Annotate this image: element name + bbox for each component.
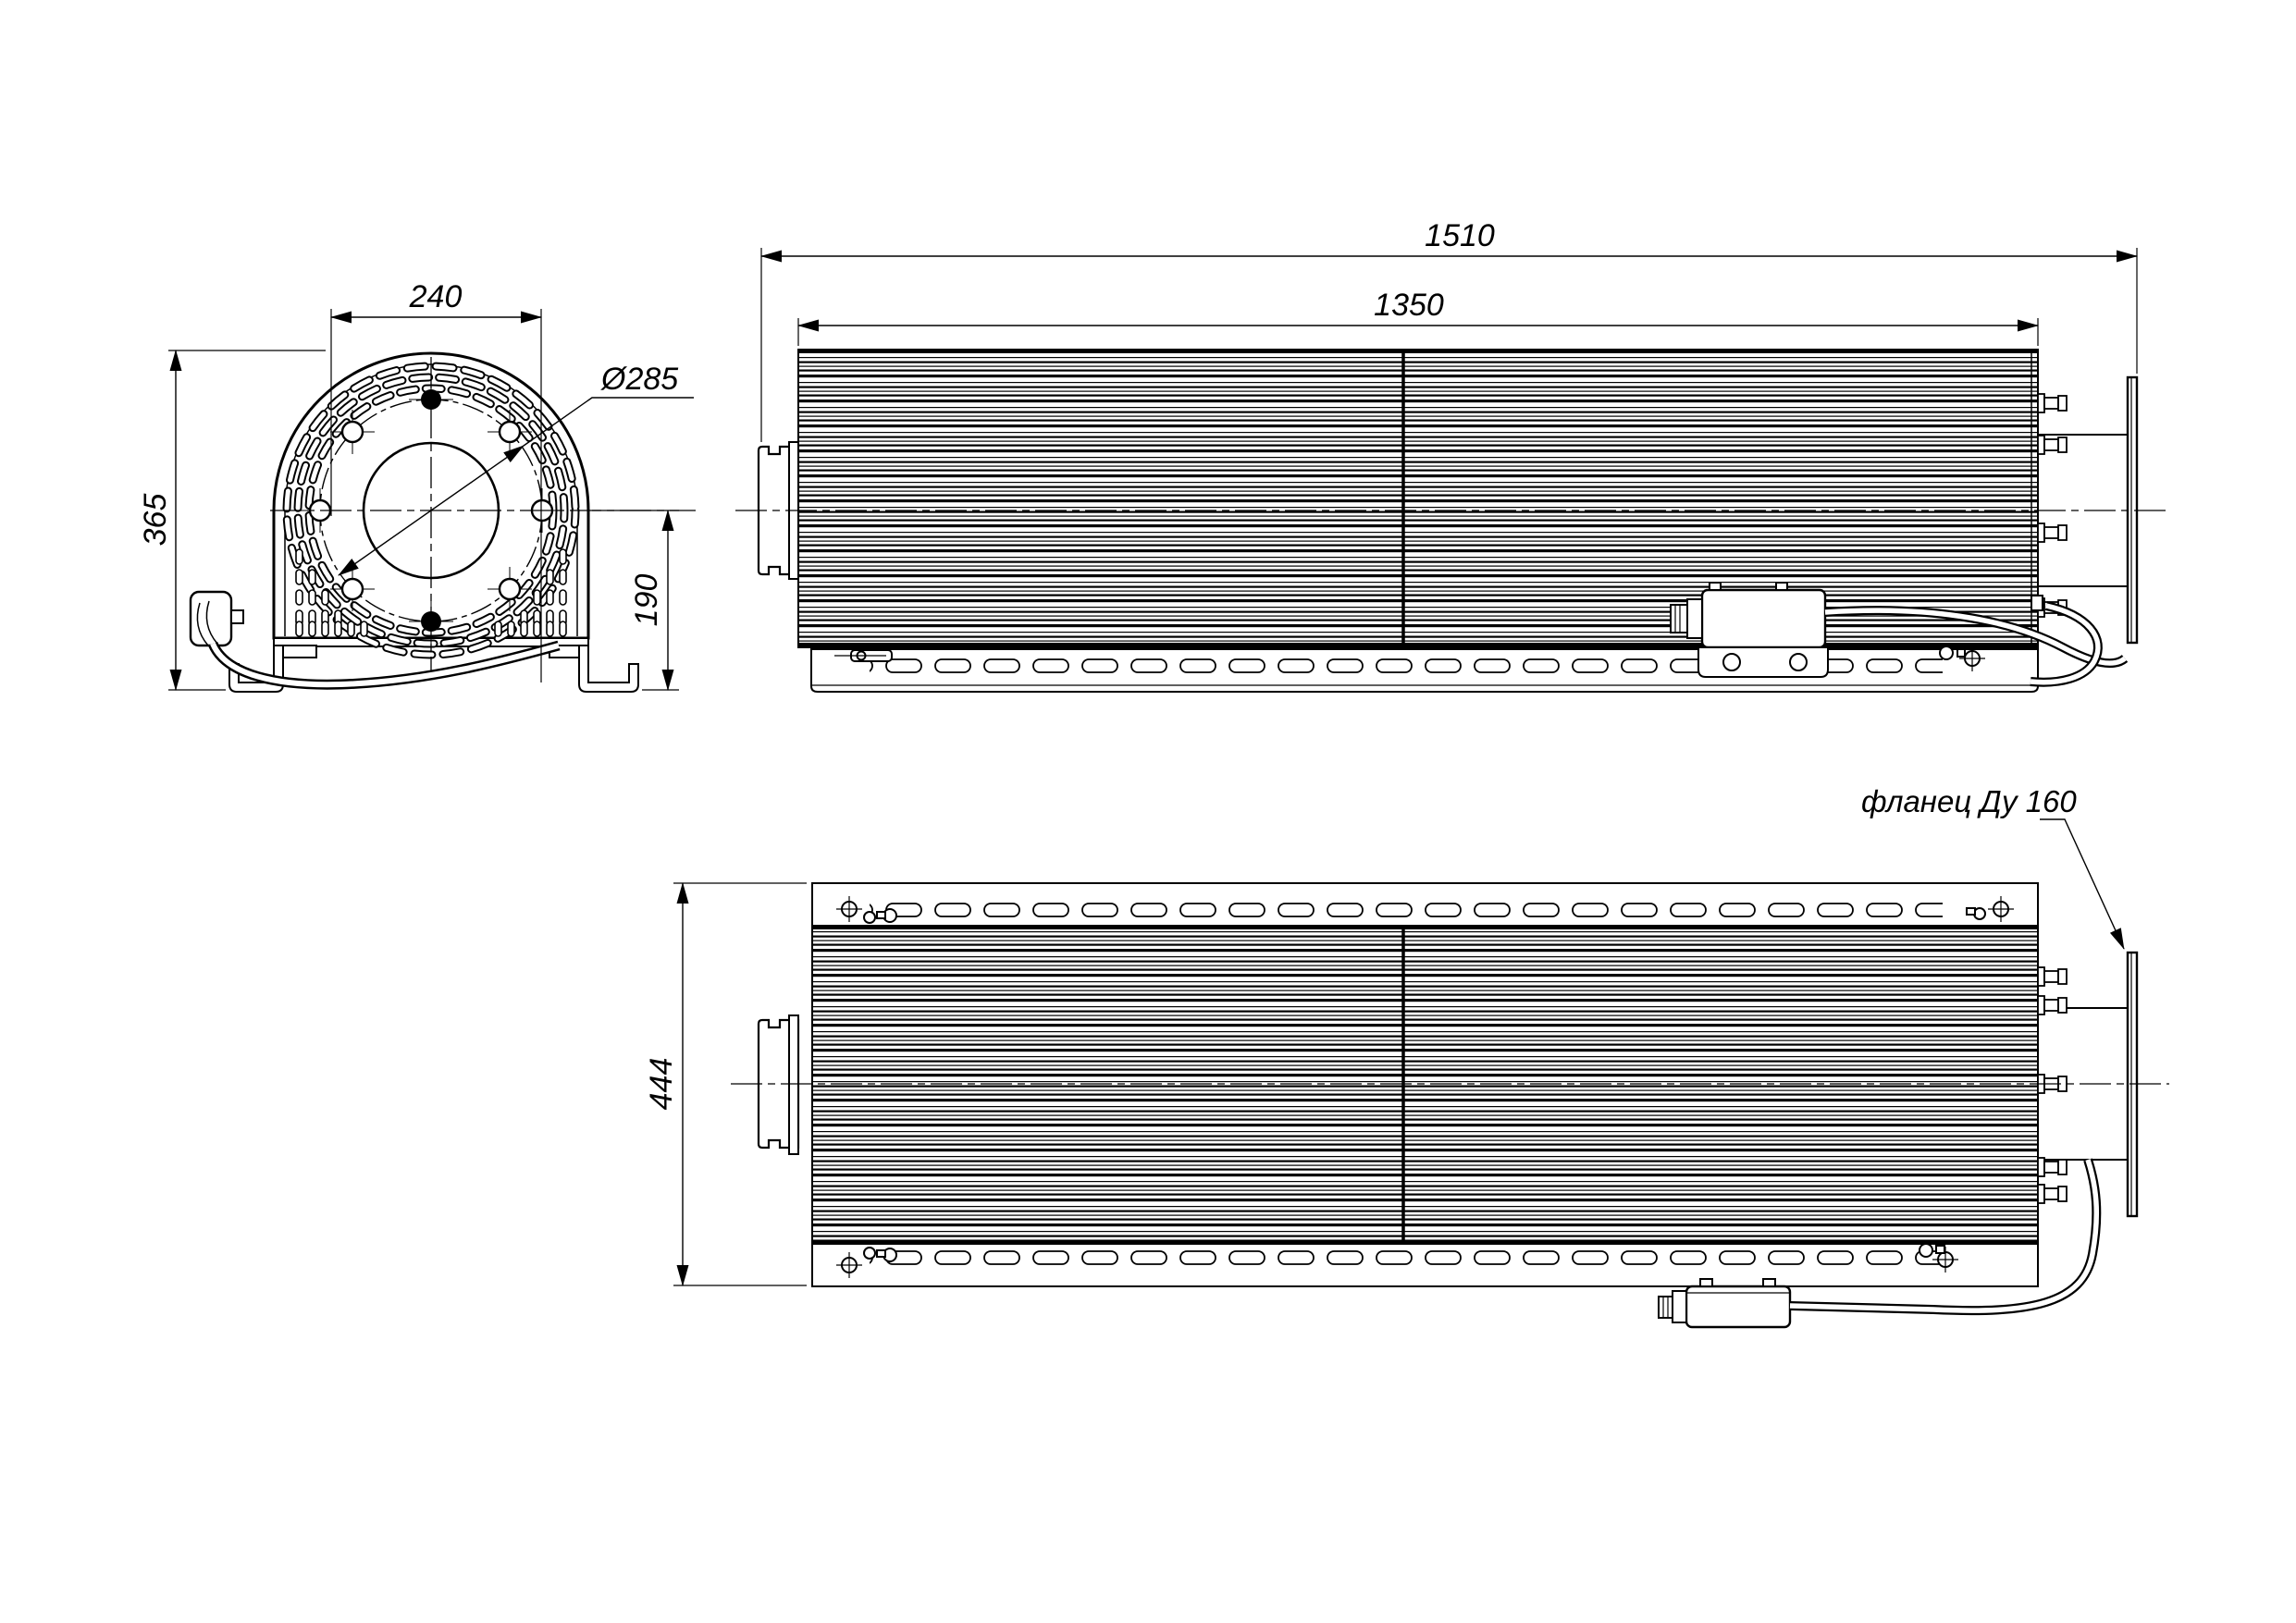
front-width-label: 240 [409,279,463,314]
dimension-axis-height: 190 [592,510,679,690]
mounting-rail-side [811,646,2038,692]
plan-view [731,883,2169,1327]
axis-height-label: 190 [629,574,664,627]
dimension-finned-length: 1350 [798,288,2038,346]
overall-length-label: 1510 [1425,218,1495,253]
drawing-sheet: 240 365 Ø285 190 1510 [0,0,2296,1623]
bolt-circle-label: Ø285 [600,362,678,397]
studs-plan [2038,967,2067,1203]
finned-length-label: 1350 [1374,288,1444,323]
technical-drawing: 240 365 Ø285 190 1510 [0,0,2296,1623]
junction-box-front [191,592,243,646]
finned-body-plan [812,926,2038,1244]
studs-side [2038,394,2067,617]
side-view [735,350,2169,692]
flange-callout-label: фланец Ду 160 [1861,784,2077,818]
finned-body-side [798,350,2038,647]
front-view [191,353,696,692]
plan-width-label: 444 [644,1058,679,1111]
bottom-rail-plan [812,1244,2038,1286]
front-height-label: 365 [138,494,173,547]
top-rail-plan [812,883,2038,926]
